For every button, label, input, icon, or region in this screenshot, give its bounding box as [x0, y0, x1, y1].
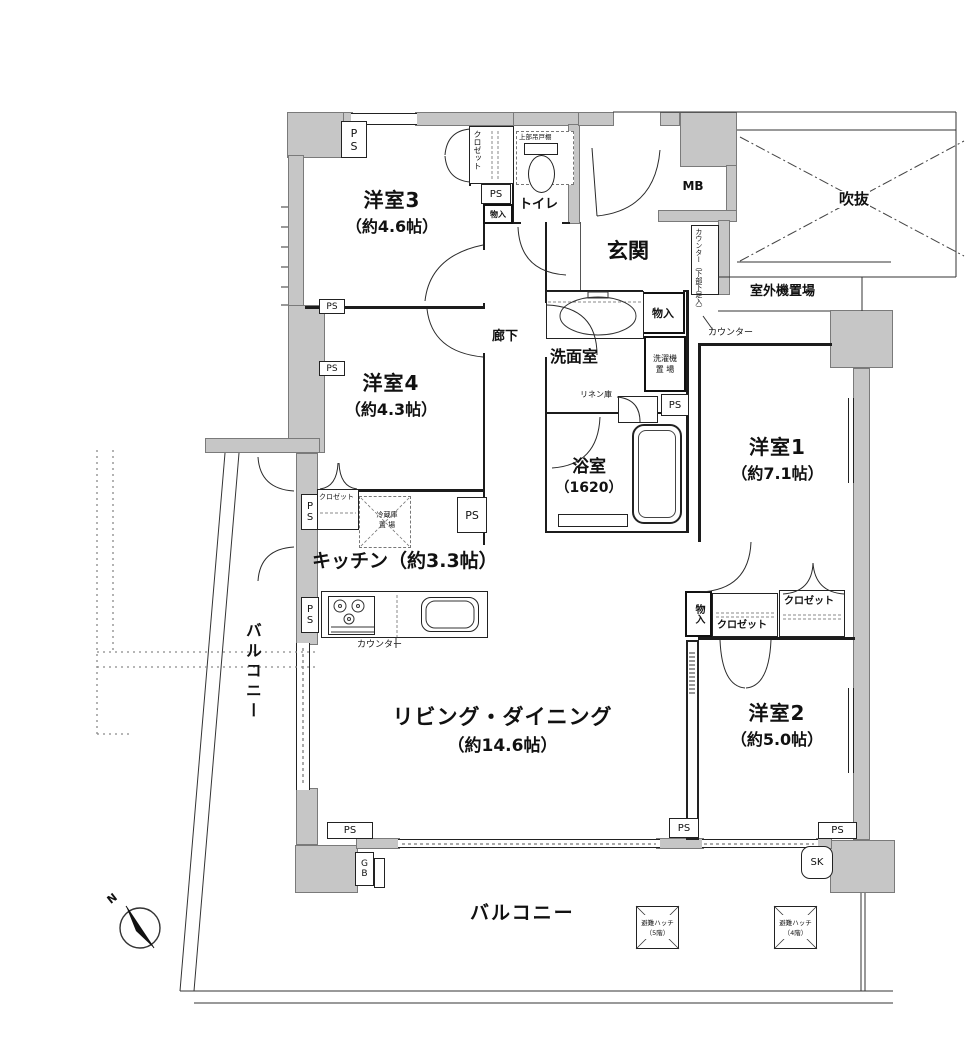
closet-box: クロゼット: [469, 126, 514, 184]
laundry-box: 洗濯機 置 場: [644, 336, 686, 392]
stove: [328, 596, 375, 635]
room-label-entrance: 玄関: [607, 240, 649, 264]
toilet-bowl: [528, 155, 555, 193]
wall-gray: [578, 112, 614, 126]
closet-box: クロゼット: [712, 593, 778, 637]
door-arc-toilet: [518, 227, 566, 275]
window: [296, 643, 310, 790]
room-label-kitchen: キッチン（約3.3帖）: [312, 551, 498, 572]
storage-box: 物入: [483, 204, 513, 224]
ps-box: PS: [669, 818, 699, 838]
closet-doors-bedroom4: [320, 463, 357, 489]
ps-box: PS: [341, 121, 367, 158]
wall-segment: [483, 224, 485, 250]
north-label: N: [105, 891, 120, 906]
shoe-counter-box: カウンター（下部下足入）: [691, 225, 719, 295]
storage-box: 物入: [685, 591, 712, 637]
mb-label: MB: [663, 174, 723, 200]
wall-segment: [545, 531, 688, 533]
door-arc-balcony-2: [258, 547, 294, 581]
room-label-bedroom2: 洋室2 （約5.0帖）: [698, 694, 856, 752]
toilet-tank: [524, 143, 558, 155]
window: [398, 839, 660, 848]
upper-cabinet-label: 上部吊戸棚: [519, 134, 552, 141]
ps-box: PS: [301, 597, 319, 633]
laundry-label-2: 置 場: [656, 364, 675, 375]
room-label-bedroom3: 洋室3 （約4.6帖）: [308, 182, 476, 238]
bathtub-inner: [638, 430, 676, 518]
fridge-label-2: 置 場: [379, 520, 395, 530]
door-arc-bedroom1: [700, 542, 751, 592]
ps-box: PS: [661, 394, 689, 416]
ps-box: PS: [457, 497, 487, 533]
closet-label: クロゼット: [717, 620, 767, 631]
balcony-edge: [180, 453, 225, 991]
wall-gray: [830, 310, 893, 368]
sk-sink: SK: [801, 846, 833, 879]
label-outdoor-unit: 室外機置場: [750, 285, 815, 300]
wall-gray: [296, 788, 318, 845]
fridge-space: 冷蔵庫 置 場: [359, 496, 411, 548]
room-label-balcony-side: バルコニー: [243, 622, 261, 722]
closet-label: クロゼット: [472, 130, 481, 170]
wall-segment: [562, 222, 570, 224]
door-arc-entrance: [597, 150, 660, 216]
wall-segment: [483, 303, 485, 309]
wall-gray: [853, 368, 870, 840]
room-label-bath: 浴室 （1620）: [546, 446, 632, 502]
wall-gray: [718, 220, 730, 295]
wall-segment: [545, 357, 547, 533]
laundry-label-1: 洗濯機: [653, 353, 677, 364]
vanity-counter: [546, 291, 644, 339]
hatch-label-5f: 避難ハッチ （5階）: [640, 915, 675, 939]
room-label-hallway: 廊下: [492, 330, 518, 345]
gb-side-box: [374, 858, 385, 888]
wall-gray: [660, 112, 680, 126]
wall-segment: [700, 343, 832, 346]
shoe-counter-label: カウンター（下部下足入）: [693, 228, 704, 312]
door-arc-bedroom4: [427, 309, 483, 357]
wall-segment: [698, 343, 701, 542]
linen-box: [618, 396, 658, 423]
room-label-washroom: 洗面室: [550, 348, 598, 366]
ps-box: PS: [818, 822, 857, 839]
balcony-edge: [194, 453, 239, 991]
wall-gray: [680, 112, 737, 167]
storage-box: 物入: [641, 292, 685, 334]
closet-label: クロゼット: [784, 596, 834, 607]
room-label-bedroom1: 洋室1 （約7.1帖）: [705, 428, 850, 486]
room-label-balcony-main: バルコニー: [470, 903, 575, 924]
closet-label: クロゼット: [319, 494, 354, 502]
wall-gray: [288, 155, 304, 307]
room-label-living-dining: リビング・ダイニング （約14.6帖）: [330, 698, 675, 758]
ps-box: PS: [481, 184, 511, 204]
wall-gray: [830, 840, 895, 893]
wall-segment: [698, 637, 855, 640]
wall-gray: [356, 838, 400, 849]
door-arc-bedroom2-left: [720, 640, 745, 688]
door-arc-balcony-1: [258, 457, 294, 491]
door-leaf-entrance: [592, 148, 597, 216]
room-label-toilet: トイレ: [519, 198, 558, 213]
wall-segment: [483, 353, 485, 492]
wall-gray: [287, 112, 345, 158]
wall-gray: [205, 438, 320, 453]
linen-label: リネン庫: [580, 391, 612, 400]
wall-segment: [513, 222, 521, 224]
door-arc-bedroom3: [425, 245, 483, 301]
floorplan: PS PS PS PS PS PS PS PS PS PS PS クロゼット ク…: [0, 0, 980, 1046]
gb-box: GB: [355, 852, 374, 886]
door-arc-bedroom2-right: [746, 640, 771, 688]
kitchen-sink: [421, 597, 479, 632]
bath-step: [558, 514, 628, 527]
ps-box: PS: [319, 299, 345, 314]
room-label-bedroom4: 洋室4 （約4.3帖）: [305, 365, 477, 421]
north-arrow: [120, 906, 160, 948]
closet-box: クロゼット: [779, 590, 845, 637]
counter-label-kitchen: カウンター: [357, 640, 402, 650]
window: [702, 839, 818, 848]
closet-doors-bedroom3: [445, 129, 470, 182]
room-label-void: 吹抜: [838, 191, 870, 208]
counter-label-entrance: カウンター: [708, 328, 753, 338]
fridge-label-1: 冷蔵庫: [377, 510, 398, 520]
ps-box: PS: [327, 822, 373, 839]
closet-box: クロゼット: [317, 489, 359, 530]
wall-gray: [295, 845, 358, 893]
hatch-label-4f: 避難ハッチ （4階）: [778, 915, 813, 939]
entrance-step-line: [580, 222, 581, 292]
